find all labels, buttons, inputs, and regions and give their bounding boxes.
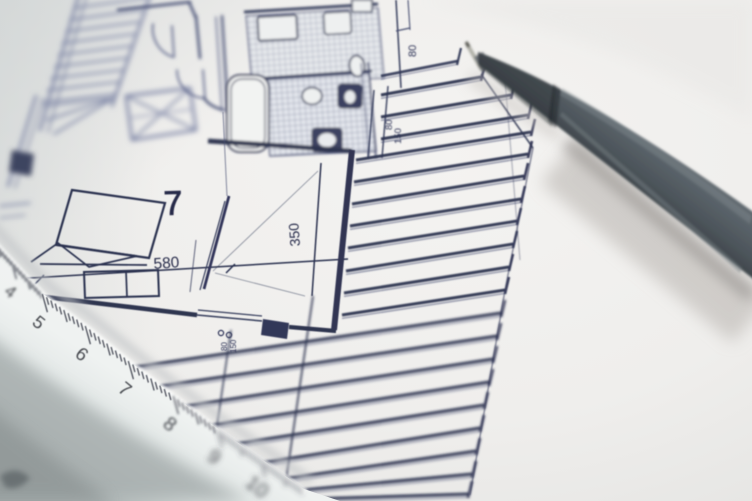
svg-text:7: 7: [163, 184, 183, 223]
svg-text:150: 150: [229, 339, 238, 353]
svg-text:80: 80: [220, 342, 229, 351]
svg-text:580: 580: [153, 254, 180, 273]
svg-text:350: 350: [285, 222, 303, 247]
svg-text:80: 80: [407, 45, 419, 57]
